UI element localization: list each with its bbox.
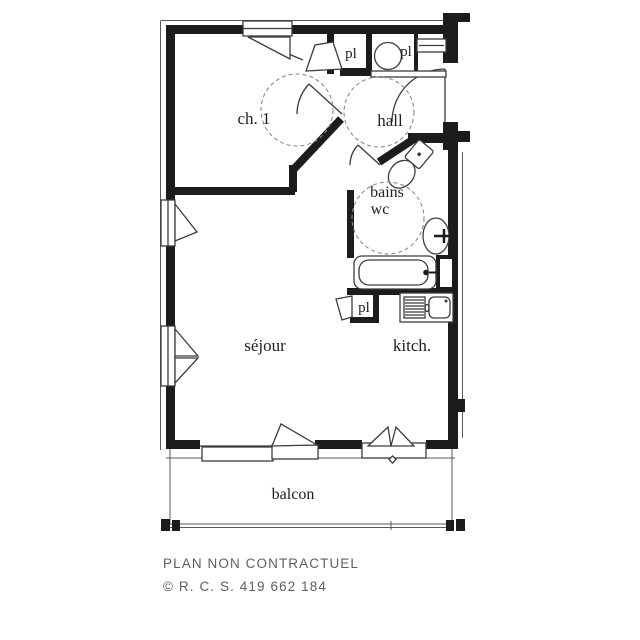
plan-disclaimer-text: PLAN NON CONTRACTUEL	[163, 556, 359, 571]
room-label-bathroom-line2: wc	[371, 201, 390, 218]
living-window-left-2	[161, 326, 198, 386]
room-label-hall: hall	[377, 111, 403, 130]
room-label-living-room: séjour	[244, 336, 286, 355]
room-label-balcony: balcon	[272, 486, 315, 503]
closet-hall-sliding-front	[371, 71, 446, 77]
plan-registration-text: © R. C. S. 419 662 184	[163, 579, 327, 594]
bedroom-door	[297, 84, 342, 114]
balcony-door-kitchen	[362, 427, 426, 463]
room-label-closet-kitchen: pl	[358, 300, 370, 316]
floor-plan-page: ch. 1 hall pl pl bains wc séjour kitch. …	[0, 0, 640, 640]
bathtub-icon	[354, 256, 437, 289]
washbasin-icon	[423, 218, 452, 254]
closet-bedroom-door	[306, 42, 342, 71]
room-label-bedroom: ch. 1	[237, 109, 270, 128]
living-window-left-1	[161, 200, 197, 246]
duct-entry	[417, 39, 446, 52]
floor-plan-drawing: ch. 1 hall pl pl bains wc séjour kitch. …	[0, 0, 640, 640]
room-label-closet-hall: pl	[400, 44, 412, 60]
kitchen-sink-icon	[400, 293, 453, 322]
balcony-door-main	[200, 424, 318, 461]
room-label-bathroom-line1: bains	[370, 184, 404, 201]
closet-kitchen-door	[336, 296, 352, 320]
room-label-kitchen: kitch.	[393, 336, 431, 355]
bathroom-door	[350, 145, 380, 165]
duct-bathroom	[438, 257, 454, 289]
room-label-closet-bedroom: pl	[345, 46, 357, 62]
water-heater-icon	[375, 43, 402, 70]
